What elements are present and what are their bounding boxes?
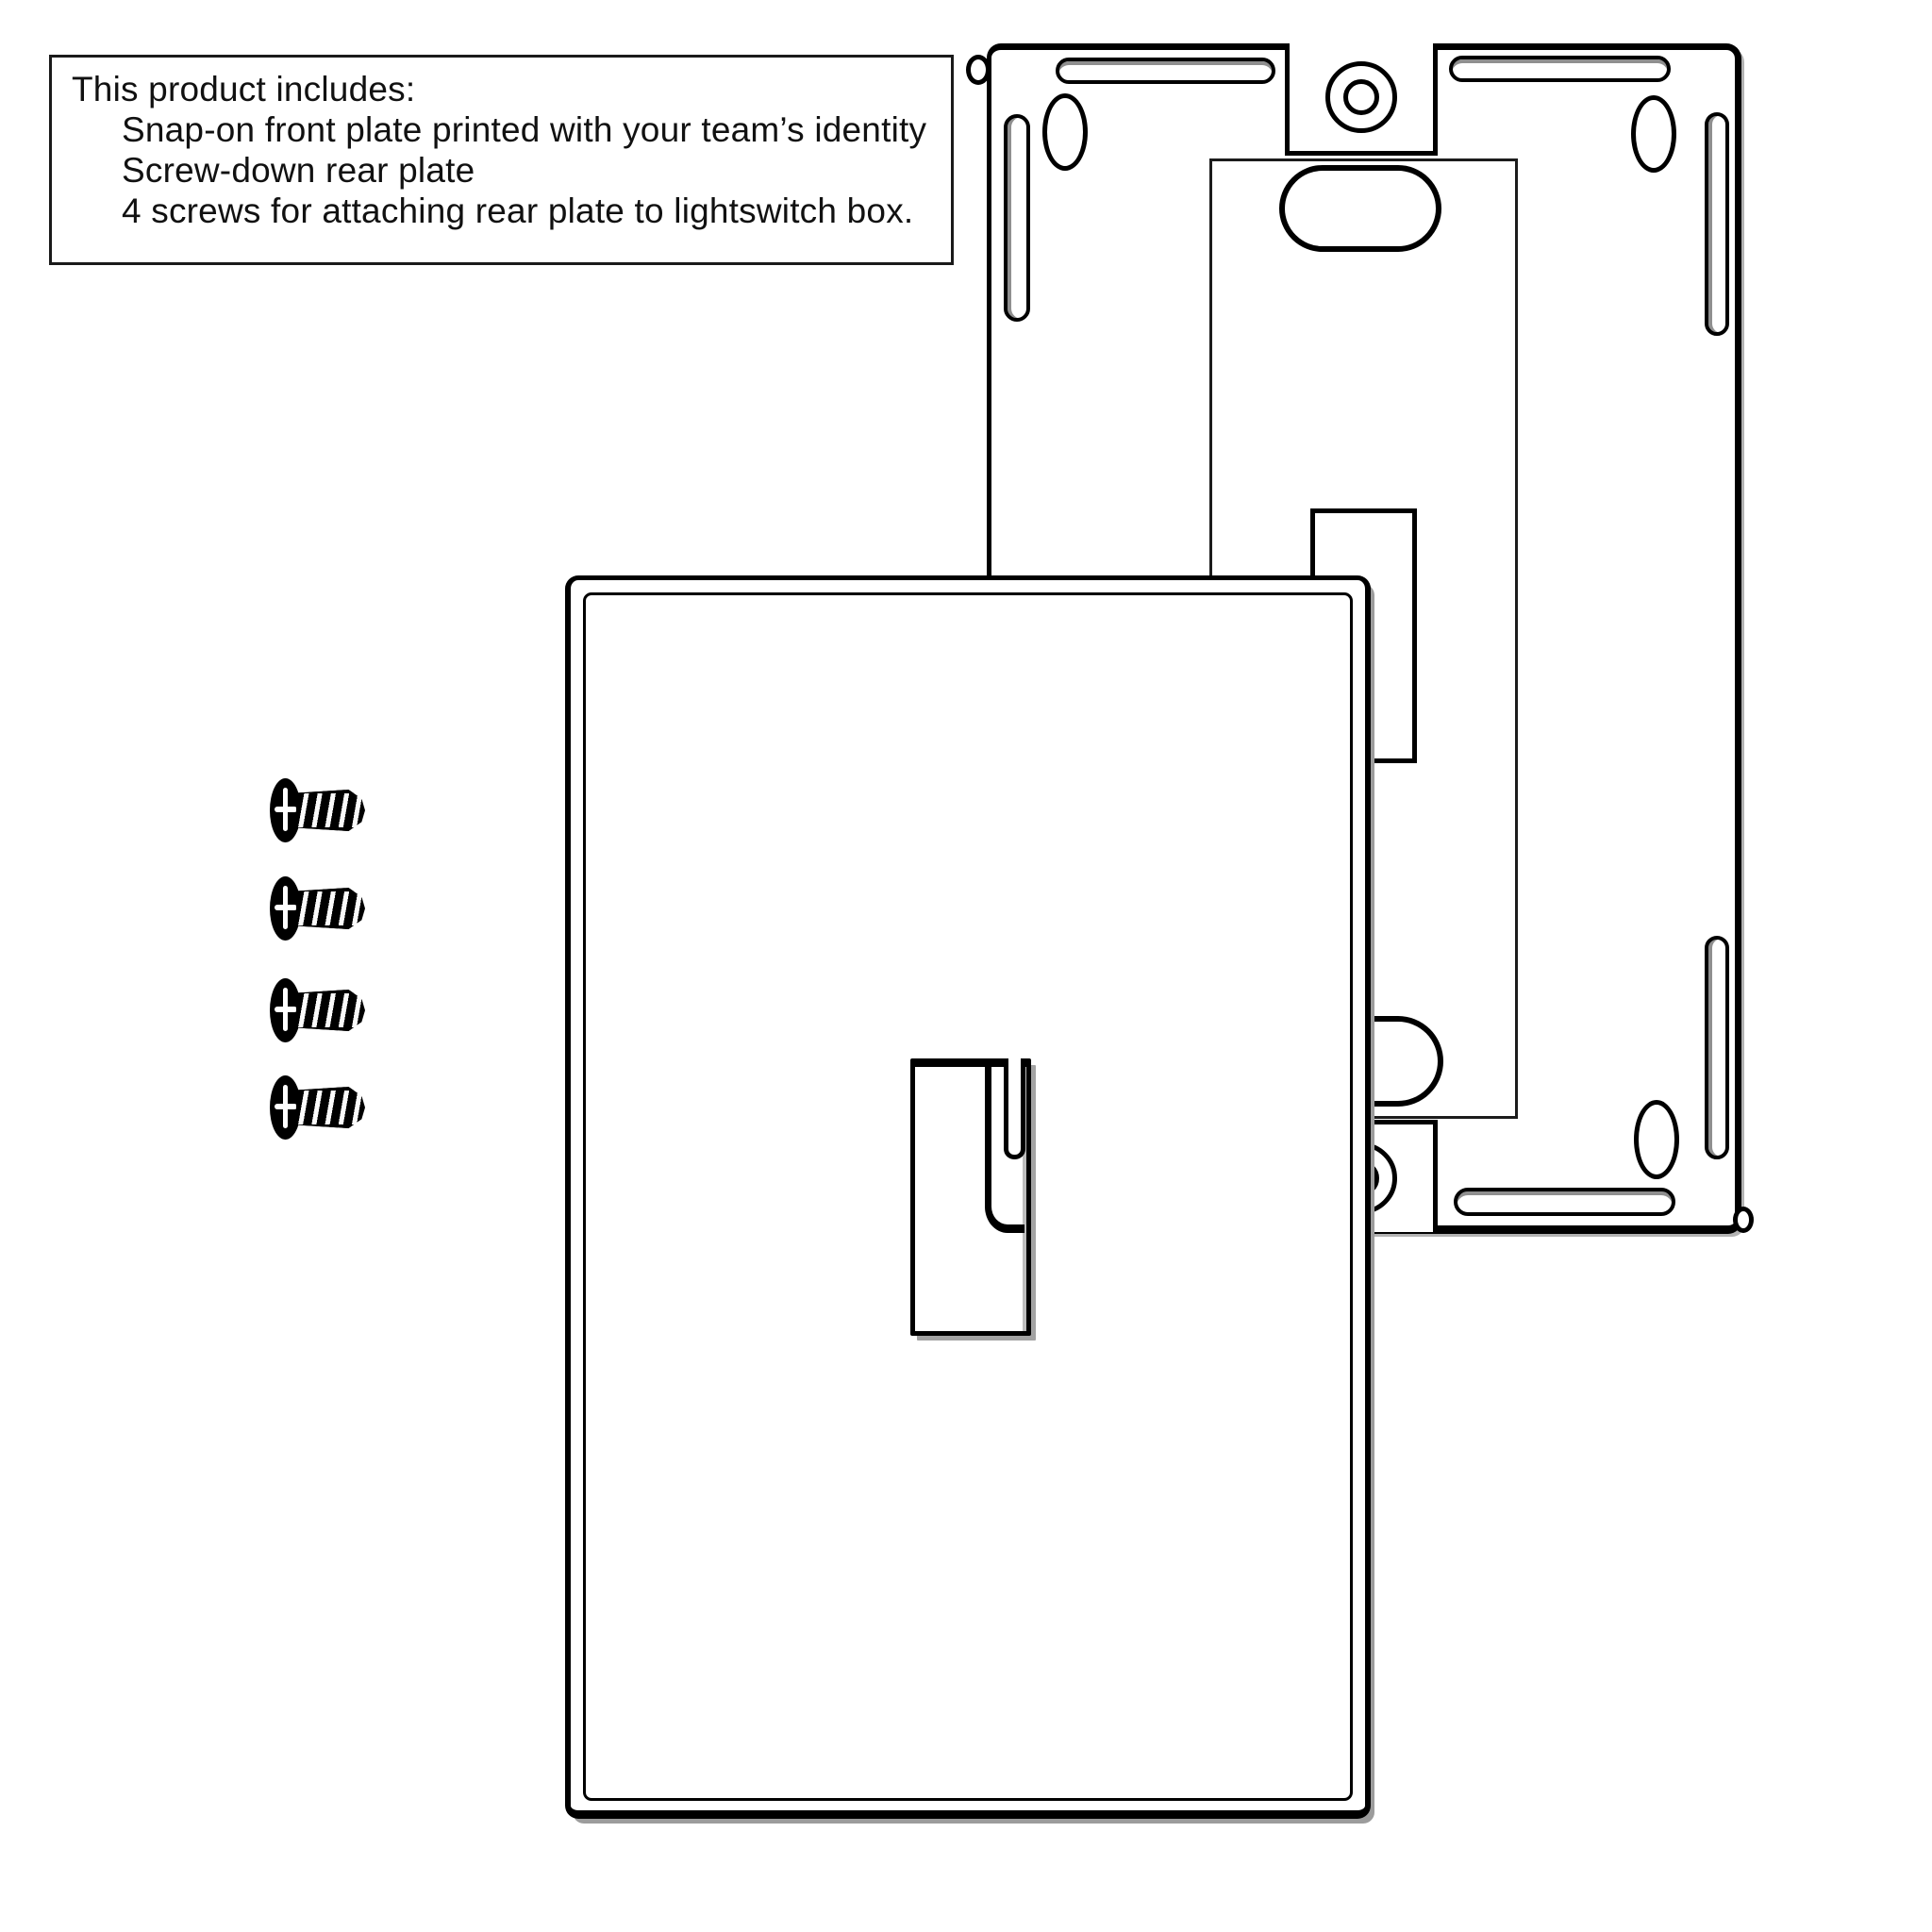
info-item-rear-plate: Screw-down rear plate <box>122 150 934 191</box>
screw-tab-top <box>1285 43 1438 156</box>
screw-4 <box>270 1074 370 1141</box>
screw-1 <box>270 776 370 844</box>
mounting-slot-right-upper <box>1705 112 1729 336</box>
screw-thread-icon <box>296 790 365 831</box>
info-item-screws: 4 screws for attaching rear plate to lig… <box>122 191 934 231</box>
info-title: This product includes: <box>72 69 934 109</box>
info-box: This product includes: Snap-on front pla… <box>49 55 954 265</box>
info-item-front-plate: Snap-on front plate printed with your te… <box>122 109 934 150</box>
toggle-switch-opening <box>910 1058 1031 1336</box>
screw-3 <box>270 976 370 1044</box>
mounting-slot-left <box>1004 114 1030 322</box>
screw-hole-top-icon <box>1325 61 1397 133</box>
corner-notch-bottom-right <box>1733 1207 1754 1233</box>
screw-thread-icon <box>296 990 365 1031</box>
mounting-slot-bottom <box>1454 1188 1675 1216</box>
obround-opening-top <box>1279 165 1441 252</box>
screw-thread-icon <box>296 888 365 929</box>
corner-notch-top-left <box>966 55 991 85</box>
mounting-slot-right-lower <box>1705 936 1729 1159</box>
screw-thread-icon <box>296 1087 365 1128</box>
product-diagram: This product includes: Snap-on front pla… <box>0 0 1932 1932</box>
oval-hole-bottom-right <box>1634 1100 1679 1179</box>
oval-hole-top-left <box>1042 93 1088 171</box>
mounting-slot-top-left <box>1056 58 1275 84</box>
oval-hole-top-right <box>1631 95 1676 173</box>
toggle-lever-channel <box>1004 1058 1025 1159</box>
screw-2 <box>270 874 370 942</box>
front-plate <box>565 575 1371 1819</box>
mounting-slot-top-right <box>1449 56 1671 82</box>
